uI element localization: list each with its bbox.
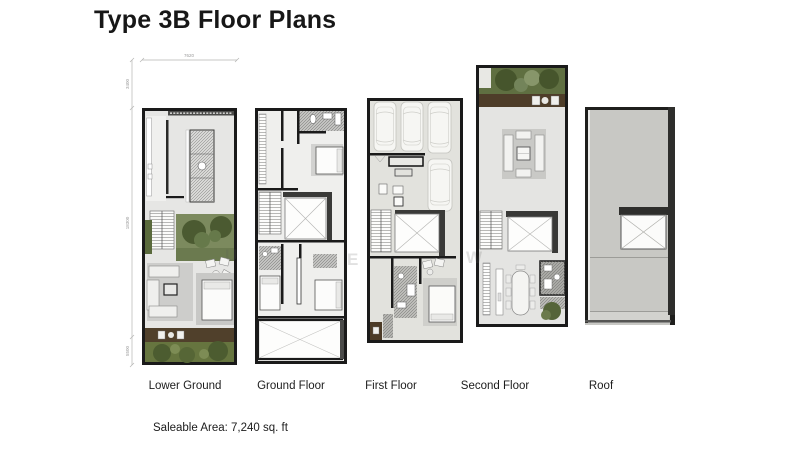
floor-label-roof: Roof xyxy=(589,380,613,392)
wardrobe xyxy=(186,130,214,202)
roof-seam xyxy=(590,257,669,258)
void-x xyxy=(506,211,558,253)
bed-bottom-right xyxy=(315,280,342,310)
stairs-icon xyxy=(150,211,174,249)
floor-plans-page: Type 3B Floor Plans 7620 3400 18300 5500 xyxy=(0,0,800,450)
saleable-area-text: Saleable Area: 7,240 sq. ft xyxy=(153,422,288,434)
garden xyxy=(145,341,234,363)
roof-seam-2 xyxy=(590,311,669,312)
bed xyxy=(311,144,343,176)
page-title: Type 3B Floor Plans xyxy=(94,6,336,35)
watermark-letter: E xyxy=(347,250,358,270)
dimension-label-width: 7620 xyxy=(184,53,195,58)
dimension-label-middle: 18300 xyxy=(125,216,130,229)
carport-void-x xyxy=(258,320,344,359)
bed-bottom-left xyxy=(260,276,280,310)
void-x xyxy=(395,210,445,256)
floor-plan-roof xyxy=(585,107,675,325)
sofa-set xyxy=(502,129,546,179)
floor-label-lower-ground: Lower Ground xyxy=(149,380,222,392)
bed xyxy=(196,273,234,325)
void-x xyxy=(619,207,668,249)
floor-plan-ground-floor xyxy=(255,108,347,364)
void-x xyxy=(283,192,332,240)
closet xyxy=(259,114,266,184)
sofa-set xyxy=(147,263,193,321)
floor-plan-second-floor xyxy=(476,65,568,327)
stairs-icon xyxy=(259,192,281,234)
deck xyxy=(479,94,565,107)
planter xyxy=(145,220,152,254)
floor-label-first-floor: First Floor xyxy=(365,380,417,392)
dimension-label-top: 3400 xyxy=(125,78,130,89)
watermark-letter: U xyxy=(225,246,237,266)
entry-strip xyxy=(168,111,234,116)
bathroom xyxy=(540,261,565,309)
floor-label-second-floor: Second Floor xyxy=(461,380,529,392)
mid-wall xyxy=(258,240,344,243)
watermark-letter: W xyxy=(466,248,482,268)
bedroom xyxy=(423,278,457,326)
bathroom-right-small xyxy=(313,254,337,268)
roof-garden xyxy=(479,68,565,94)
floor-plan-lower-ground xyxy=(142,108,237,365)
bottom-wall xyxy=(258,316,344,319)
stairs-icon xyxy=(480,211,502,249)
floor-plan-first-floor xyxy=(367,98,463,343)
stairs-icon xyxy=(371,210,391,252)
dimension-label-bottom: 5500 xyxy=(125,345,130,356)
deck-corner xyxy=(370,322,382,340)
floor-label-ground-floor: Ground Floor xyxy=(257,380,325,392)
deck xyxy=(145,328,234,342)
